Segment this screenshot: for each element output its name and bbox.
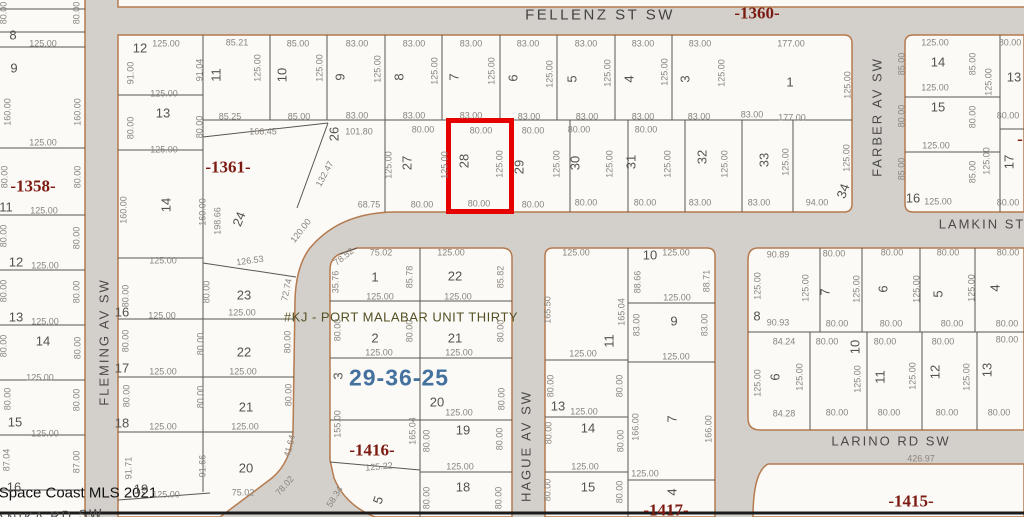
section-number: 29-36-25 (349, 367, 449, 390)
dimension-label: 125.00 (796, 363, 805, 391)
dimension-label: 83.00 (575, 40, 598, 49)
lot-number: 21 (448, 332, 462, 345)
lot-number: 10 (276, 68, 289, 82)
dimension-label: 75.02 (232, 489, 255, 498)
dimension-label: 80.00 (816, 338, 839, 347)
dimension-label: 80.00 (0, 280, 9, 303)
dimension-label: 85.00 (287, 40, 310, 49)
lot-number: 7 (448, 73, 461, 80)
dimension-label: 80.00 (880, 320, 903, 329)
dimension-label: 80.00 (617, 430, 626, 453)
dimension-label: 83.00 (632, 40, 655, 49)
street-name: FELLENZ ST SW (525, 8, 675, 23)
lot-number: 14 (931, 56, 945, 69)
lot-number: 15 (581, 481, 595, 494)
dimension-label: 125.00 (374, 55, 383, 83)
dimension-label: 80.00 (996, 336, 1019, 345)
dimension-label: 85.00 (898, 53, 907, 76)
dimension-label: 80.00 (547, 375, 556, 398)
dimension-label: 125.00 (30, 207, 58, 216)
dimension-label: 83.00 (632, 113, 655, 122)
dimension-label: 80.00 (999, 39, 1022, 48)
lot-number: 6 (507, 74, 520, 81)
dimension-label: 80.00 (826, 409, 849, 418)
dimension-label: 91.04 (196, 59, 205, 82)
dimension-label: 125.00 (254, 54, 263, 82)
dimension-label: 85.00 (898, 158, 907, 181)
dimension-label: 83.00 (403, 40, 426, 49)
dimension-label: 80.00 (498, 388, 507, 411)
dimension-label: 125.00 (968, 274, 977, 302)
dimension-label: 80.00 (406, 320, 415, 343)
block-number: - (1017, 131, 1023, 148)
dimension-label: 80.00 (495, 487, 504, 510)
dimension-label: 125.00 (228, 309, 256, 318)
dimension-label: 80.00 (196, 116, 205, 139)
lot-number: 6 (769, 373, 782, 380)
lot-number: 2 (371, 332, 378, 345)
lot-number: 20 (239, 462, 253, 475)
lot-number: 23 (237, 289, 251, 302)
lot-number: 16 (115, 306, 129, 319)
lot-number: 31 (625, 155, 638, 169)
lot-number: 16 (906, 192, 920, 205)
dimension-label: 80.00 (874, 338, 897, 347)
lot-number: 20 (430, 396, 444, 409)
dimension-label: 125.00 (754, 272, 763, 300)
dimension-label: 125.00 (754, 369, 763, 397)
lot-number: 4 (989, 284, 1002, 291)
dimension-label: 125.00 (385, 151, 394, 179)
dimension-label: 125.00 (570, 408, 598, 417)
dimension-label: 87.00 (73, 451, 82, 474)
dimension-label: 177.00 (777, 40, 805, 49)
dimension-label: 177.00 (778, 114, 806, 123)
dimension-label: 90.89 (767, 251, 790, 260)
dimension-label: 80.00 (497, 320, 506, 343)
dimension-label: 125.00 (631, 470, 659, 479)
dimension-label: 80.00 (575, 199, 598, 208)
dimension-label: 125.00 (664, 150, 673, 178)
dimension-label: 80.00 (285, 384, 294, 407)
dimension-label: 80.00 (616, 375, 625, 398)
lot-number: 13 (156, 107, 170, 120)
dimension-label: 166.00 (632, 413, 641, 441)
dimension-label: 125.00 (921, 39, 949, 48)
dimension-label: 80.00 (878, 409, 901, 418)
dimension-label: 80.00 (0, 225, 9, 248)
dimension-label: 83.00 (460, 40, 483, 49)
dimension-label: 80.00 (522, 201, 545, 210)
street-name: HAGUE AV SW (520, 390, 533, 502)
dimension-label: 125.00 (366, 293, 394, 302)
dimension-label: 80.00 (635, 126, 658, 135)
block-number: -1416- (349, 442, 394, 459)
lot-number: 14 (160, 198, 173, 212)
dimension-label: 90.93 (767, 319, 790, 328)
dimension-label: 155.00 (334, 410, 343, 438)
dimension-label: 80.00 (284, 331, 293, 354)
dimension-label: 125.00 (983, 147, 992, 175)
dimension-label: 83.00 (518, 113, 541, 122)
dimension-label: 80.00 (568, 126, 591, 135)
dimension-label: 80.00 (881, 249, 904, 258)
dimension-label: 80.00 (937, 249, 960, 258)
lot-number: 30 (569, 156, 582, 170)
lot-number: 11 (0, 201, 13, 214)
lot-number: 27 (401, 156, 414, 170)
subdivision-label: #KJ - PORT MALABAR UNIT THIRTY (284, 311, 518, 324)
lot-number: 13 (1007, 71, 1021, 84)
dimension-label: 83.00 (688, 113, 711, 122)
lot-number: 11 (874, 370, 887, 384)
dimension-label: 80.00 (423, 487, 432, 510)
plat-map: FELLENZ ST SW-1360-FLEMING AV SWFARBER A… (0, 0, 1024, 517)
lot-number: 3 (332, 372, 345, 379)
lot-number: 10 (849, 340, 862, 354)
dimension-label: 80.00 (522, 127, 545, 136)
lot-number: 4 (666, 488, 679, 495)
dimension-label: 83.00 (701, 314, 710, 337)
lot-number: 1 (371, 271, 378, 284)
dimension-label: 83.00 (346, 40, 369, 49)
dimension-label: 80.00 (127, 117, 136, 140)
dimension-label: 125.00 (844, 71, 853, 99)
dimension-label: 83.00 (346, 112, 369, 121)
dimension-label: 125.00 (150, 90, 178, 99)
dimension-label: 125.00 (441, 151, 450, 179)
lot-number: 3 (679, 75, 692, 82)
lot-number: 15 (931, 101, 945, 114)
dimension-label: 160.00 (120, 196, 129, 224)
dimension-label: 125.00 (922, 142, 950, 151)
lot-number: 11 (210, 68, 223, 82)
dimension-label: 84.28 (773, 410, 796, 419)
dimension-label: 68.75 (358, 201, 381, 210)
dimension-label: 125.00 (316, 54, 325, 82)
dimension-label: 125.00 (431, 57, 440, 85)
lot-number: 18 (115, 417, 129, 430)
dimension-label: 125.00 (496, 150, 505, 178)
lot-number: 22 (448, 270, 462, 283)
dimension-label: 85.00 (969, 53, 978, 76)
dimension-label: 91.66 (199, 455, 208, 478)
dimension-label: 80.00 (932, 338, 955, 347)
lot-number: 8 (9, 29, 16, 42)
dimension-label: 80.00 (73, 227, 82, 250)
dimension-label: 83.00 (517, 40, 540, 49)
dimension-label: 80.00 (997, 112, 1020, 121)
dimension-label: 85.00 (969, 161, 978, 184)
street-name: LAMKIN ST (939, 218, 1024, 231)
dimension-label: 125.00 (148, 312, 176, 321)
dimension-label: 88.71 (703, 270, 712, 293)
dimension-label: 125.00 (606, 150, 615, 178)
dimension-label: 80.00 (411, 201, 434, 210)
dimension-label: 166.45 (249, 128, 277, 137)
dimension-label: 80.00 (197, 333, 206, 356)
lot-number: 13 (551, 400, 565, 413)
lot-number: 17 (115, 362, 129, 375)
dimension-label: 125.00 (553, 150, 562, 178)
dimension-label: 125.00 (802, 274, 811, 302)
dimension-label: 125.00 (721, 150, 730, 178)
dimension-label: 84.24 (773, 338, 796, 347)
dimension-label: 83.00 (748, 199, 771, 208)
lot-number: 12 (9, 256, 23, 269)
block-number: -1417- (643, 502, 688, 517)
dimension-label: 160.00 (74, 98, 83, 126)
block-number: -1415- (888, 493, 933, 510)
dimension-label: 125.00 (662, 353, 690, 362)
lot-number: 5 (566, 75, 579, 82)
dimension-label: 80.00 (203, 281, 212, 304)
dimension-label: 80.00 (74, 166, 83, 189)
dimension-label: 80.00 (616, 481, 625, 504)
dimension-label: 166.00 (705, 415, 714, 443)
block-number: -1361- (205, 159, 250, 176)
dimension-label: 80.00 (988, 409, 1011, 418)
dimension-label: 125.00 (718, 59, 727, 87)
dimension-label: 80.00 (470, 127, 493, 136)
lot-number: 26 (328, 127, 341, 141)
dimension-label: 83.00 (689, 40, 712, 49)
dimension-label: 125.00 (782, 148, 791, 176)
lot-number: 14 (581, 422, 595, 435)
dimension-label: 83.00 (741, 111, 764, 120)
dimension-label: 125.00 (26, 374, 54, 383)
dimension-label: 80.00 (996, 320, 1019, 329)
lot-number: 18 (456, 481, 470, 494)
dimension-label: 125.00 (29, 139, 57, 148)
dimension-label: 125.00 (444, 293, 472, 302)
dimension-label: 125.00 (924, 198, 952, 207)
dimension-label: 85.25 (219, 113, 242, 122)
dimension-label: 125.00 (31, 262, 59, 271)
lot-number: 12 (133, 42, 147, 55)
dimension-label: 80.00 (634, 199, 657, 208)
dimension-label: 125.00 (569, 350, 597, 359)
dimension-label: 80.00 (74, 337, 83, 360)
dimension-label: 101.80 (345, 128, 373, 137)
street-name: FLEMING AV SW (98, 278, 111, 406)
dimension-label: 426.97 (907, 455, 935, 464)
dimension-label: 125.00 (149, 423, 177, 432)
dimension-label: 80.00 (898, 105, 907, 128)
dimension-label: 85.78 (406, 266, 415, 289)
dimension-label: 80.00 (73, 389, 82, 412)
dimension-label: 80.00 (73, 2, 82, 25)
dimension-label: 125.00 (985, 68, 994, 96)
dimension-label: 80.00 (412, 126, 435, 135)
dimension-label: 75.02 (370, 249, 393, 258)
dimension-label: 80.00 (423, 430, 432, 453)
lot-number: 4 (623, 75, 636, 82)
dimension-label: 125.00 (854, 365, 863, 393)
dimension-label: 83.00 (403, 112, 426, 121)
dimension-label: 198.66 (214, 207, 223, 235)
lot-number: 19 (134, 483, 148, 496)
dimension-label: 80.00 (997, 199, 1020, 208)
block-number: -1360- (734, 5, 779, 22)
lot-number: 9 (10, 62, 17, 75)
dimension-label: 125.00 (231, 423, 259, 432)
dimension-label: 83.00 (633, 314, 642, 337)
dimension-label: 80.00 (4, 388, 13, 411)
lot-number: 17 (1003, 155, 1016, 169)
dimension-label: 125.00 (149, 257, 177, 266)
block-1417-shape (545, 248, 715, 517)
dimension-label: 125.00 (546, 60, 555, 88)
dimension-label: 80.00 (544, 479, 553, 502)
dimension-label: 165.04 (618, 298, 627, 326)
lot-number: 11 (603, 334, 616, 348)
dimension-label: 125.00 (663, 294, 691, 303)
dimension-label: 88.66 (634, 271, 643, 294)
dimension-label: 125.00 (445, 409, 473, 418)
dimension-label: 125.00 (571, 463, 599, 472)
dimension-label: 125.00 (921, 84, 949, 93)
lot-number: 5 (932, 290, 945, 297)
dimension-label: 80.00 (997, 249, 1020, 258)
dimension-label: 80.00 (936, 409, 959, 418)
dimension-label: 83.00 (460, 112, 483, 121)
dimension-label: 80.00 (334, 319, 343, 342)
dimension-label: 91.71 (125, 457, 134, 480)
dimension-label: 125.00 (661, 58, 670, 86)
dimension-label: 160.00 (199, 198, 208, 226)
dimension-label: 125.00 (446, 463, 474, 472)
lot-number: 12 (929, 365, 942, 379)
dimension-label: 125.00 (229, 368, 257, 377)
dimension-label: 94.00 (806, 199, 829, 208)
lot-number: 29 (513, 160, 526, 174)
lot-number: 6 (877, 285, 890, 292)
dimension-label: 85.21 (226, 39, 249, 48)
dimension-label: 125.00 (843, 144, 852, 172)
block-number: -1358- (10, 178, 55, 195)
dimension-label: 125.00 (853, 275, 862, 303)
dimension-label: 125.00 (604, 59, 613, 87)
dimension-label: 125.00 (152, 40, 180, 49)
lot-number: 22 (237, 346, 251, 359)
dimension-label: 125.00 (662, 249, 690, 258)
dimension-label: 125.00 (31, 318, 59, 327)
dimension-label: 91.00 (127, 62, 136, 85)
dimension-label: 125.00 (488, 57, 497, 85)
dimension-label: 83.00 (689, 199, 712, 208)
dimension-label: 80.00 (826, 320, 849, 329)
farber-east-block-shape (905, 35, 1024, 212)
dimension-label: 80.00 (823, 250, 846, 259)
lot-number: 13 (9, 311, 23, 324)
lot-number: 7 (819, 288, 832, 295)
lot-number: 8 (393, 73, 406, 80)
lot-number: 28 (458, 154, 471, 168)
lot-number: 21 (239, 401, 253, 414)
dimension-label: 80.00 (123, 385, 132, 408)
lot-number: 16 (7, 481, 21, 494)
lot-number: 33 (758, 153, 771, 167)
dimension-label: 125.00 (29, 40, 57, 49)
dimension-label: 85.82 (497, 266, 506, 289)
street-name: LARINO RD SW (831, 435, 950, 448)
dimension-label: 80.00 (197, 386, 206, 409)
dimension-label: 125.00 (445, 349, 473, 358)
dimension-label: 125.00 (909, 362, 918, 390)
dimension-label: 80.00 (73, 281, 82, 304)
dimension-label: 80.00 (122, 330, 131, 353)
dimension-label: 80.00 (496, 428, 505, 451)
lot-number: 9 (670, 315, 677, 328)
dimension-label: 125.00 (963, 363, 972, 391)
dimension-label: 125.00 (562, 249, 590, 258)
dimension-label: 80.00 (969, 106, 978, 129)
lot-number: 15 (8, 416, 22, 429)
dimension-label: 87.04 (3, 449, 12, 472)
dimension-label: 80.00 (1, 166, 10, 189)
lot-number: 8 (753, 310, 760, 323)
dimension-label: 125.00 (437, 249, 465, 258)
lot-number: 9 (334, 73, 347, 80)
dimension-label: 165.04 (409, 417, 418, 445)
lot-number: 1 (786, 76, 793, 89)
dimension-label: 125.00 (149, 368, 177, 377)
dimension-label: 125.00 (913, 275, 922, 303)
lot-number: 7 (666, 415, 679, 422)
lot-number: 14 (36, 335, 50, 348)
dimension-label: 85.00 (288, 113, 311, 122)
dimension-label: 80.00 (545, 422, 554, 445)
dimension-label: 125.00 (152, 491, 180, 500)
lot-number: 10 (643, 249, 657, 262)
dimension-label: 80.00 (468, 200, 491, 209)
lot-number: 32 (696, 150, 709, 164)
dimension-label: 160.00 (4, 98, 13, 126)
lot-number: 13 (981, 363, 994, 377)
lot-number: 19 (456, 424, 470, 437)
dimension-label: 80.00 (0, 335, 9, 358)
dimension-label: 83.00 (576, 113, 599, 122)
dimension-label: 165.50 (544, 296, 553, 324)
dimension-label: 125.00 (365, 349, 393, 358)
dimension-label: 80.00 (941, 320, 964, 329)
dimension-label: 80.00 (0, 2, 9, 25)
street-name: FARBER AV SW (871, 57, 884, 177)
dimension-label: 125.00 (150, 146, 178, 155)
dimension-label: 125.00 (31, 430, 59, 439)
dimension-label: 35.76 (332, 271, 341, 294)
